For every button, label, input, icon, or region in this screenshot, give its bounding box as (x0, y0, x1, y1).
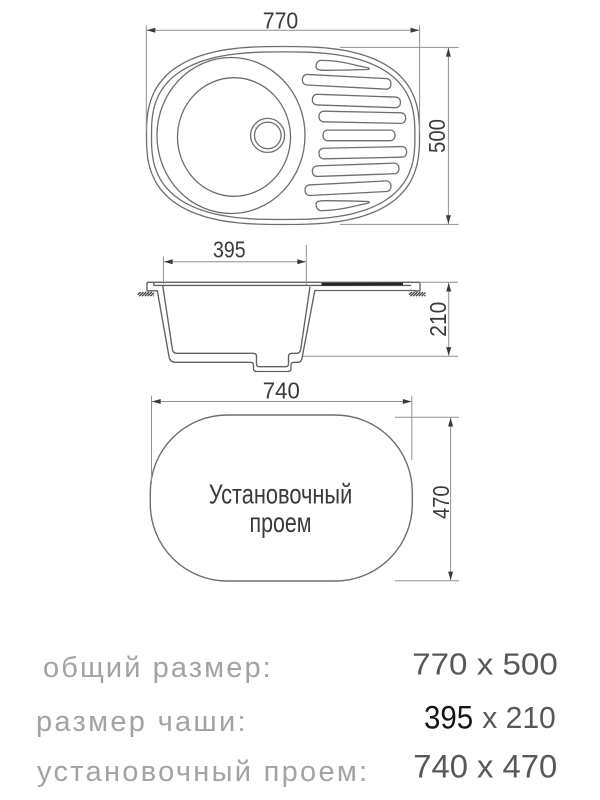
svg-text:проем: проем (250, 507, 312, 538)
svg-text:395: 395 (213, 236, 246, 262)
svg-text:210: 210 (425, 302, 451, 337)
svg-text:500: 500 (424, 119, 450, 153)
svg-text:установочный проем:: установочный проем: (37, 756, 369, 788)
svg-text:740: 740 (263, 378, 300, 404)
svg-text:x 210: x 210 (482, 701, 556, 735)
svg-text:395: 395 (424, 700, 473, 736)
svg-text:Установочный: Установочный (209, 479, 353, 510)
svg-text:770: 770 (263, 8, 299, 34)
svg-text:740 x 470: 740 x 470 (413, 748, 557, 784)
svg-text:470: 470 (428, 485, 454, 519)
svg-text:размер чаши:: размер чаши: (36, 706, 248, 738)
svg-text:770 x 500: 770 x 500 (412, 648, 558, 682)
svg-text:общий размер:: общий размер: (43, 652, 273, 684)
